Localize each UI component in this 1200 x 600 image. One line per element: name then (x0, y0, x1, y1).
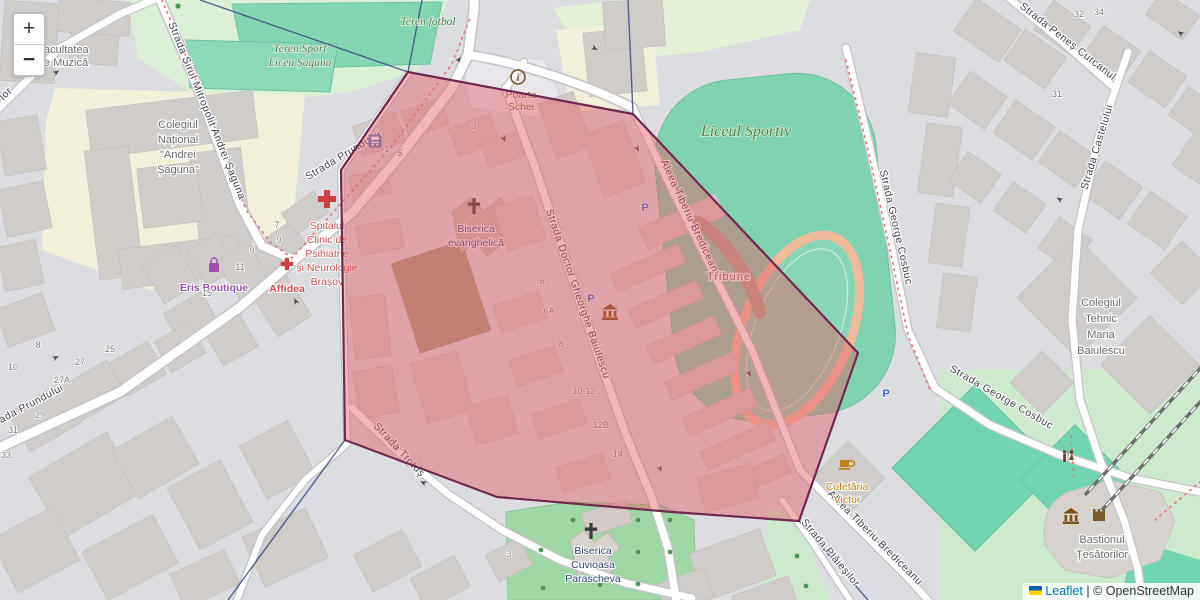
svg-text:3: 3 (506, 549, 511, 559)
svg-text:10: 10 (8, 362, 18, 372)
svg-text:15: 15 (202, 288, 212, 298)
svg-text:34: 34 (1094, 7, 1104, 17)
leaflet-link[interactable]: Leaflet (1045, 584, 1083, 598)
svg-text:8: 8 (35, 340, 40, 350)
leaflet-map: Strada Prundului Strada Prundului Strada… (0, 0, 1200, 600)
svg-text:7: 7 (274, 220, 279, 230)
svg-text:i: i (517, 73, 520, 84)
svg-text:25: 25 (105, 344, 115, 354)
svg-text:9: 9 (276, 235, 281, 245)
svg-text:11: 11 (235, 262, 244, 272)
attribution-bar: Leaflet | © OpenStreetMap (1023, 583, 1200, 600)
label-liceul-sportiv: Liceul Sportiv (700, 123, 792, 140)
osm-copyright: © OpenStreetMap (1093, 584, 1194, 598)
ukraine-flag-icon (1029, 586, 1042, 595)
svg-text:27A: 27A (54, 375, 70, 385)
svg-text:9: 9 (249, 246, 254, 256)
svg-text:31: 31 (1052, 89, 1062, 99)
label-teren-fotbol: Teren fotbol (400, 16, 455, 28)
svg-text:27: 27 (75, 357, 85, 367)
svg-text:Affidea: Affidea (269, 283, 305, 295)
zoom-in-button[interactable]: + (14, 14, 44, 44)
parking-icon: P (882, 388, 889, 400)
svg-text:31: 31 (8, 425, 18, 435)
map-canvas[interactable]: Strada Prundului Strada Prundului Strada… (0, 0, 1200, 600)
svg-text:32: 32 (1074, 9, 1084, 19)
svg-text:Eris Boutique: Eris Boutique (180, 282, 248, 294)
castle-icon (1093, 509, 1105, 521)
attribution-separator: | (1086, 584, 1089, 598)
zoom-out-button[interactable]: − (14, 44, 44, 75)
svg-text:33: 33 (1, 450, 11, 460)
zoom-control: + − (12, 12, 46, 77)
svg-text:29: 29 (35, 410, 45, 420)
